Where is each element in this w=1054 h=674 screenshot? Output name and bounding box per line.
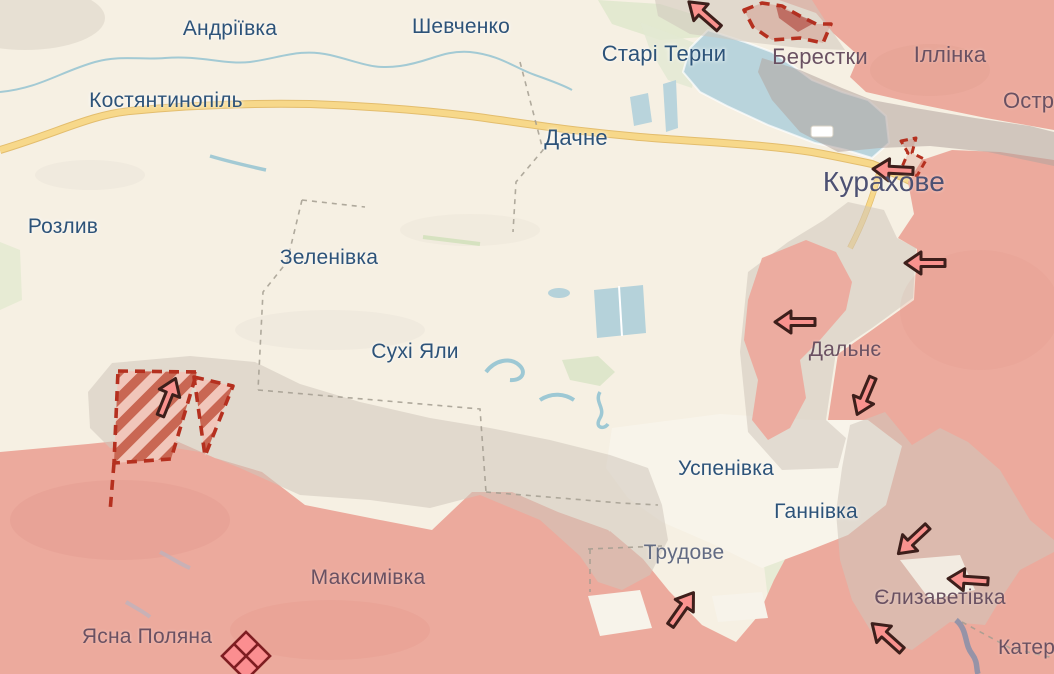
water-pond bbox=[663, 80, 678, 132]
stream bbox=[540, 395, 574, 400]
map-canvas[interactable]: АндріївкаШевченкоКостянтинопільСтарі Тер… bbox=[0, 0, 1054, 674]
water-pond bbox=[630, 93, 652, 126]
river bbox=[0, 52, 572, 92]
stream bbox=[486, 361, 523, 381]
road-shield bbox=[811, 126, 833, 137]
stream bbox=[210, 156, 266, 170]
stream bbox=[598, 392, 608, 427]
